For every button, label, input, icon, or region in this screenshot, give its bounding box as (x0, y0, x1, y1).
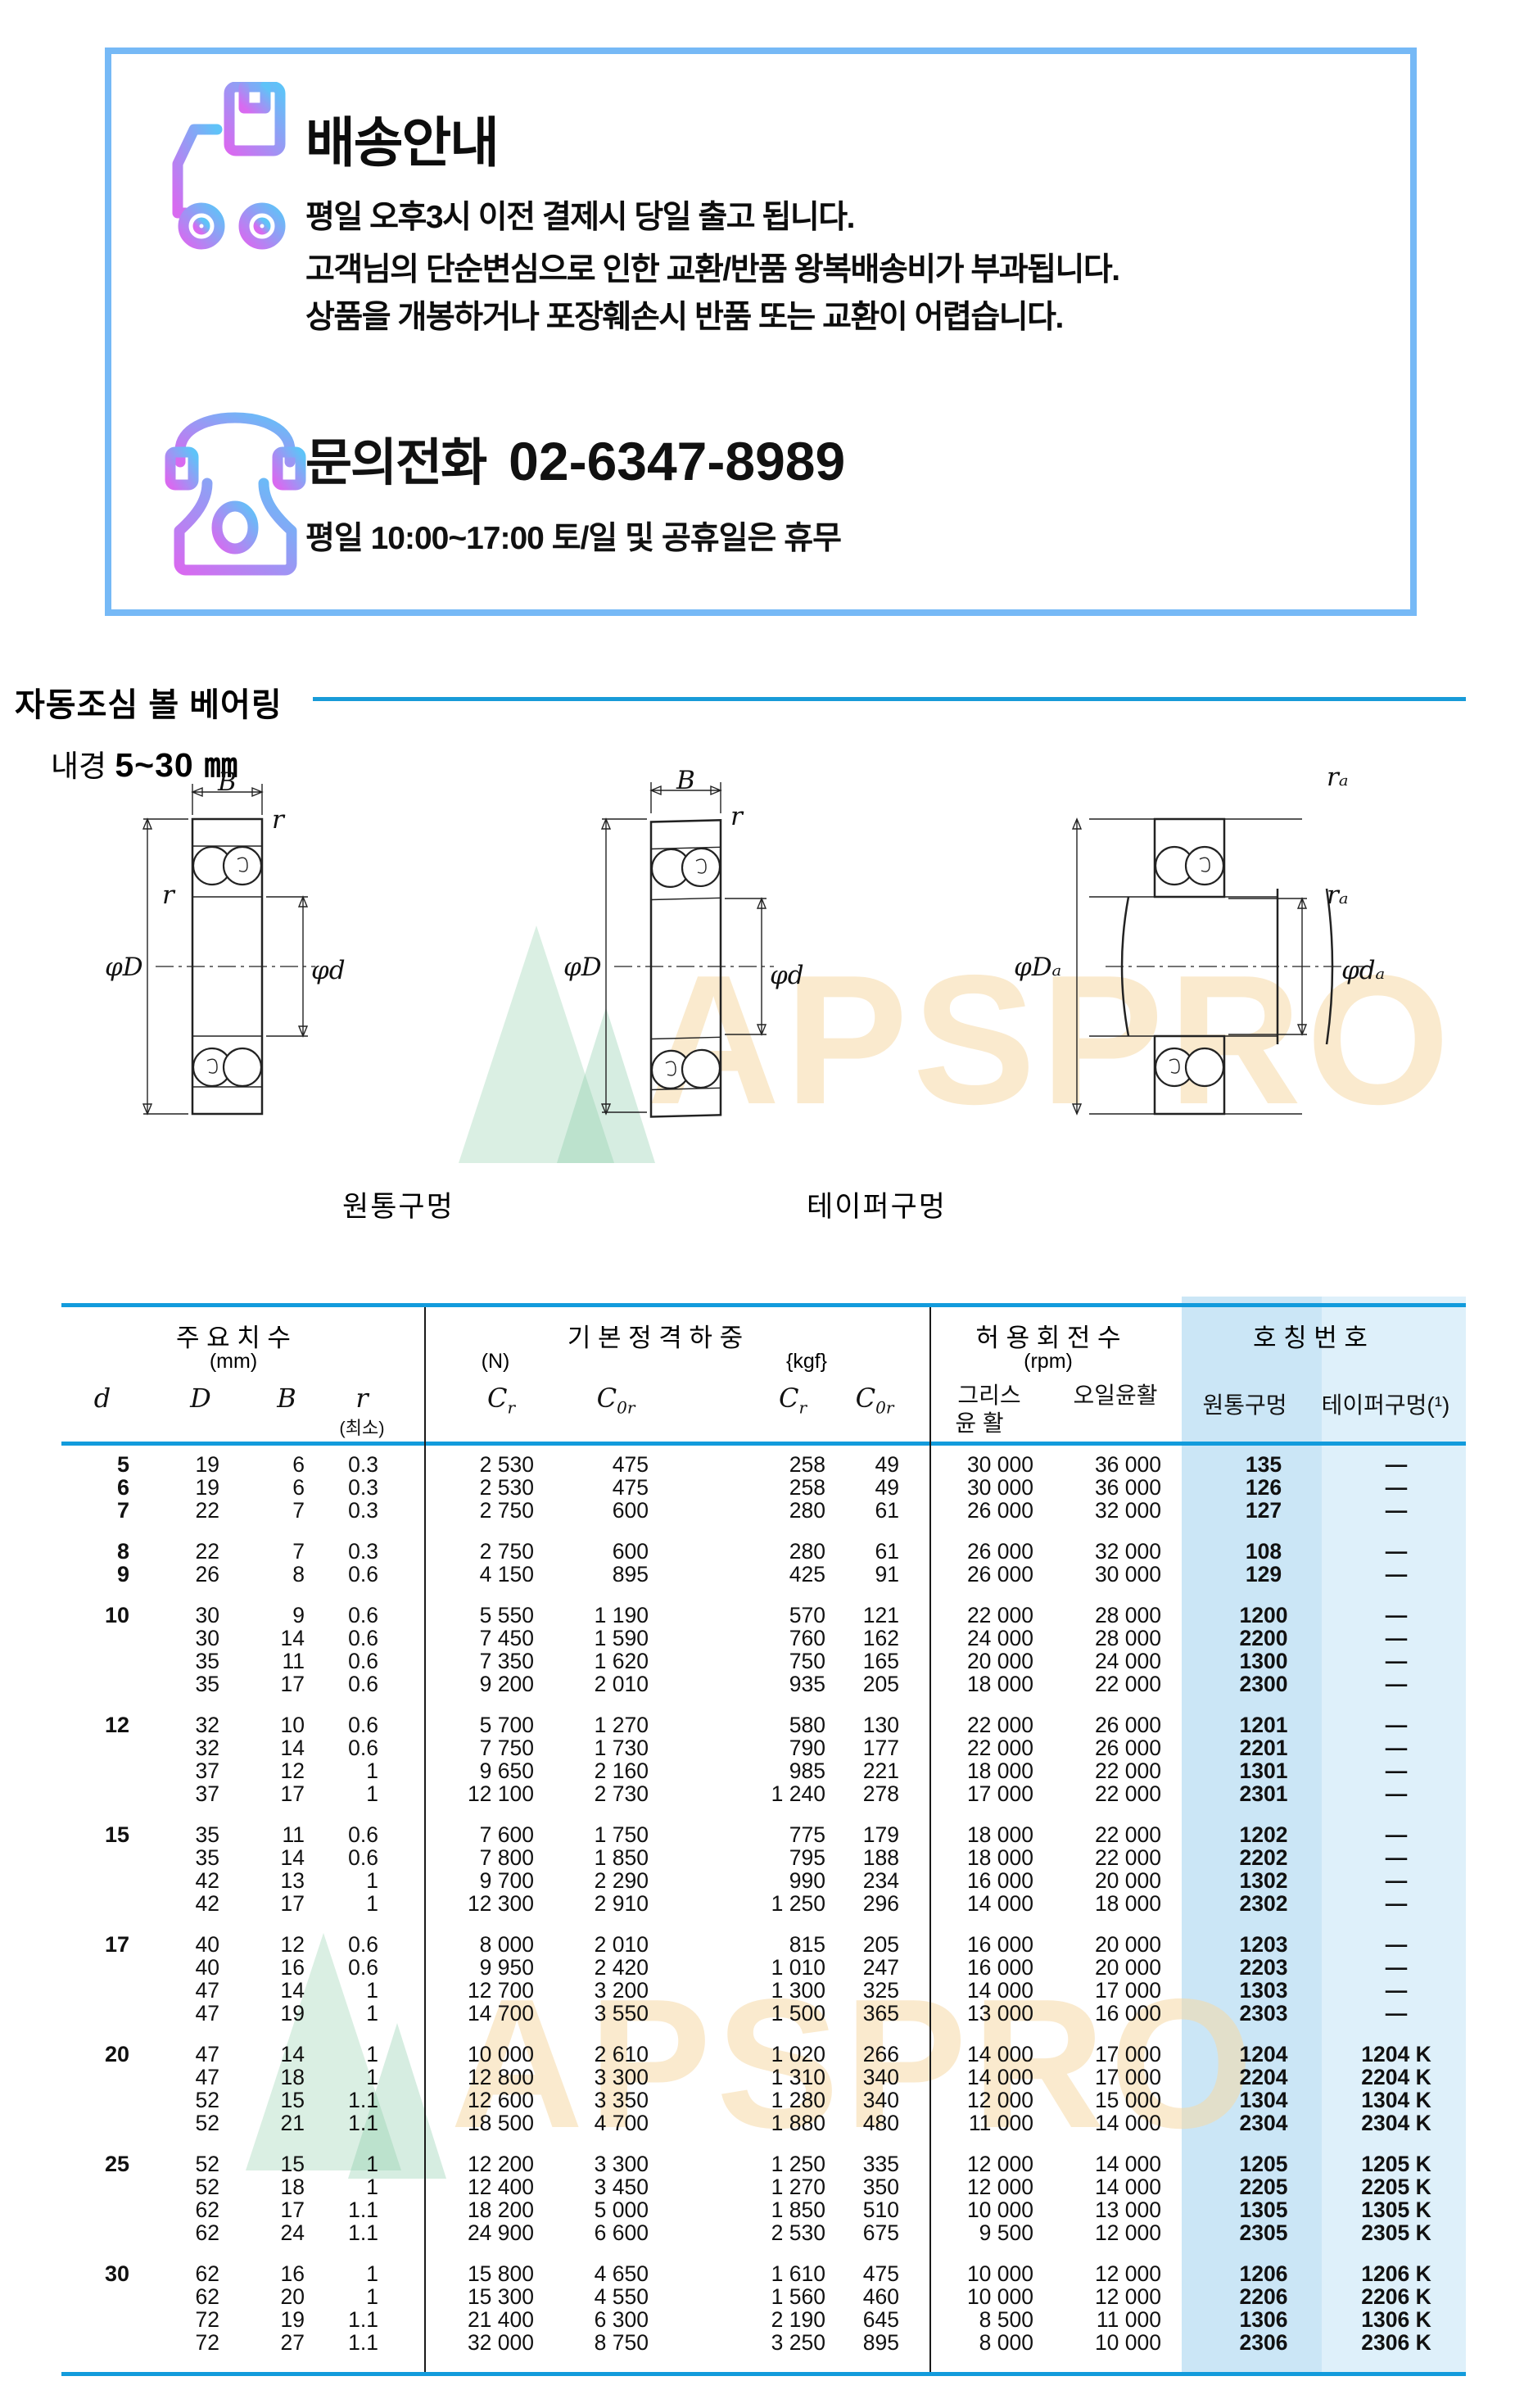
table-row: 92680.64 1508954259126 00030 000129— (0, 1563, 1515, 1586)
dim-B-label: B (676, 766, 695, 795)
cell-crn: 9 650 (426, 1759, 534, 1782)
cell-r: 1 (315, 2066, 378, 2089)
cell-gr: 12 000 (934, 2089, 1033, 2112)
cell-d (57, 1650, 129, 1672)
cell-cyl: 129 (1198, 1563, 1329, 1586)
cell-cyl: 1305 (1198, 2198, 1329, 2221)
cell-B: 7 (242, 1540, 305, 1563)
table-row: 35110.67 3501 62075016520 00024 0001300— (0, 1650, 1515, 1672)
cell-crk: 1 250 (712, 2152, 825, 2175)
cell-tap: — (1331, 1782, 1462, 1805)
cell-oil: 26 000 (1056, 1736, 1161, 1759)
cell-oil: 22 000 (1056, 1782, 1161, 1805)
cell-tap: — (1331, 1823, 1462, 1846)
header-limiting-speed: 허 용 회 전 수 (975, 1317, 1120, 1354)
cell-D: 52 (156, 2152, 219, 2175)
dim-r-label: r (272, 805, 284, 835)
cell-B: 20 (242, 2285, 305, 2308)
cell-tap: 2206 K (1331, 2285, 1462, 2308)
cell-cyl: 2303 (1198, 2002, 1329, 2025)
cell-c0rk: 49 (819, 1476, 899, 1499)
table-top-rule (61, 1303, 1466, 1307)
cell-r: 0.6 (315, 1933, 378, 1956)
cell-gr: 16 000 (934, 1869, 1033, 1892)
cell-oil: 10 000 (1056, 2331, 1161, 2354)
cell-r: 0.6 (315, 1846, 378, 1869)
bearing-diagram-mounted: rₐ rₐ φDₐ φdₐ (1032, 774, 1384, 1159)
cell-c0rk: 234 (819, 1869, 899, 1892)
cell-tap: 2205 K (1331, 2175, 1462, 2198)
group-gap (0, 2025, 1515, 2043)
cell-gr: 11 000 (934, 2112, 1033, 2134)
cell-crk: 280 (712, 1540, 825, 1563)
cell-c0rn: 4 650 (540, 2262, 649, 2285)
cell-gr: 14 000 (934, 1892, 1033, 1915)
phone-contact: 문의전화02-6347-8989 (305, 421, 845, 495)
cell-D: 37 (156, 1782, 219, 1805)
table-row: 72271.132 0008 7503 2508958 00010 000230… (0, 2331, 1515, 2354)
table-row: 52151.112 6003 3501 28034012 00015 00013… (0, 2089, 1515, 2112)
cell-r: 0.6 (315, 1736, 378, 1759)
cell-crn: 2 750 (426, 1540, 534, 1563)
cell-B: 21 (242, 2112, 305, 2134)
table-row: 4217112 3002 9101 25029614 00018 0002302… (0, 1892, 1515, 1915)
cell-oil: 28 000 (1056, 1604, 1161, 1627)
cell-c0rk: 61 (819, 1499, 899, 1522)
cell-cyl: 2200 (1198, 1627, 1329, 1650)
dim-phiD-label: φD (105, 953, 143, 982)
cell-crk: 1 500 (712, 2002, 825, 2025)
cell-B: 15 (242, 2152, 305, 2175)
cell-c0rk: 130 (819, 1713, 899, 1736)
cell-c0rk: 165 (819, 1650, 899, 1672)
bearing-diagram-cylindrical: B r r φD φd (115, 774, 385, 1159)
cell-c0rn: 5 000 (540, 2198, 649, 2221)
cell-crn: 12 400 (426, 2175, 534, 2198)
table-row: 72270.32 7506002806126 00032 000127— (0, 1499, 1515, 1522)
section-rule (313, 697, 1466, 701)
shipping-info-banner: 배송안내 평일 오후3시 이전 결제시 당일 출고 됩니다. 고객님의 단순변심… (105, 48, 1417, 616)
cell-r: 1 (315, 1979, 378, 2002)
cell-d (57, 1782, 129, 1805)
cell-c0rk: 266 (819, 2043, 899, 2066)
cell-tap: 1205 K (1331, 2152, 1462, 2175)
col-grease-line2: 윤 활 (955, 1405, 1003, 1438)
cell-c0rn: 1 750 (540, 1823, 649, 1846)
banner-line-1: 평일 오후3시 이전 결제시 당일 출고 됩니다. (305, 192, 854, 238)
cell-crk: 258 (712, 1476, 825, 1499)
cell-D: 52 (156, 2175, 219, 2198)
cell-D: 22 (156, 1540, 219, 1563)
cell-crn: 9 700 (426, 1869, 534, 1892)
table-row: 4718112 8003 3001 31034014 00017 0002204… (0, 2066, 1515, 2089)
cell-d (57, 2331, 129, 2354)
cell-gr: 14 000 (934, 1979, 1033, 2002)
group-gap (0, 2244, 1515, 2262)
cell-cyl: 1200 (1198, 1604, 1329, 1627)
cell-r: 1 (315, 1869, 378, 1892)
cell-gr: 26 000 (934, 1540, 1033, 1563)
bore-range-label: 내경 (51, 749, 106, 783)
bearing-diagram-tapered: B r φD φd (573, 774, 843, 1159)
cell-crn: 12 200 (426, 2152, 534, 2175)
cell-crn: 9 200 (426, 1672, 534, 1695)
cell-crn: 7 600 (426, 1823, 534, 1846)
cell-tap: — (1331, 1604, 1462, 1627)
cell-cyl: 2306 (1198, 2331, 1329, 2354)
group-gap (0, 1915, 1515, 1933)
phone-icon (164, 405, 307, 585)
cell-crn: 15 800 (426, 2262, 534, 2285)
table-bottom-rule (61, 2372, 1466, 2376)
cell-tap: — (1331, 1650, 1462, 1672)
cell-oil: 22 000 (1056, 1759, 1161, 1782)
cell-D: 52 (156, 2112, 219, 2134)
cell-tap: 1304 K (1331, 2089, 1462, 2112)
cell-c0rk: 645 (819, 2308, 899, 2331)
cell-gr: 30 000 (934, 1476, 1033, 1499)
cell-oil: 24 000 (1056, 1650, 1161, 1672)
cell-cyl: 1302 (1198, 1869, 1329, 1892)
cell-c0rn: 3 350 (540, 2089, 649, 2112)
cell-crk: 1 020 (712, 2043, 825, 2066)
cell-r: 1.1 (315, 2221, 378, 2244)
table-row: 61960.32 5304752584930 00036 000126— (0, 1476, 1515, 1499)
cell-gr: 10 000 (934, 2198, 1033, 2221)
dim-r-label: r (730, 802, 743, 831)
cell-crn: 4 150 (426, 1563, 534, 1586)
cell-tap: — (1331, 1627, 1462, 1650)
cell-gr: 18 000 (934, 1823, 1033, 1846)
cell-c0rn: 2 730 (540, 1782, 649, 1805)
cell-crk: 1 240 (712, 1782, 825, 1805)
banner-line-3: 상품을 개봉하거나 포장훼손시 반품 또는 교환이 어렵습니다. (305, 292, 1063, 337)
section-title: 자동조심 볼 베어링 (15, 678, 283, 726)
cell-crk: 1 270 (712, 2175, 825, 2198)
cell-B: 16 (242, 2262, 305, 2285)
cell-gr: 14 000 (934, 2066, 1033, 2089)
cell-c0rn: 2 010 (540, 1672, 649, 1695)
dim-ra-label: rₐ (1327, 763, 1348, 792)
cell-tap: 1305 K (1331, 2198, 1462, 2221)
cell-crn: 2 530 (426, 1476, 534, 1499)
cell-crk: 1 610 (712, 2262, 825, 2285)
table-row: 40160.69 9502 4201 01024716 00020 000220… (0, 1956, 1515, 1979)
cell-D: 62 (156, 2262, 219, 2285)
cell-c0rk: 91 (819, 1563, 899, 1586)
cell-c0rk: 510 (819, 2198, 899, 2221)
cell-D: 35 (156, 1650, 219, 1672)
cell-tap: — (1331, 1759, 1462, 1782)
cell-crk: 750 (712, 1650, 825, 1672)
table-row: 35140.67 8001 85079518818 00022 0002202— (0, 1846, 1515, 1869)
col-d: d (94, 1383, 111, 1414)
cell-oil: 16 000 (1056, 2002, 1161, 2025)
table-row: 6220115 3004 5501 56046010 00012 0002206… (0, 2285, 1515, 2308)
cell-crn: 32 000 (426, 2331, 534, 2354)
cell-gr: 13 000 (934, 2002, 1033, 2025)
cell-d (57, 1869, 129, 1892)
cell-c0rn: 1 270 (540, 1713, 649, 1736)
cell-crn: 12 700 (426, 1979, 534, 2002)
cell-d (57, 2198, 129, 2221)
cell-gr: 16 000 (934, 1956, 1033, 1979)
cell-B: 17 (242, 2198, 305, 2221)
cell-D: 52 (156, 2089, 219, 2112)
cell-D: 47 (156, 2066, 219, 2089)
cell-gr: 12 000 (934, 2175, 1033, 2198)
cell-oil: 22 000 (1056, 1672, 1161, 1695)
cell-oil: 14 000 (1056, 2175, 1161, 2198)
cell-oil: 20 000 (1056, 1956, 1161, 1979)
cell-c0rn: 3 200 (540, 1979, 649, 2002)
cell-oil: 17 000 (1056, 2066, 1161, 2089)
cell-r: 0.6 (315, 1956, 378, 1979)
cell-c0rk: 61 (819, 1540, 899, 1563)
cell-c0rn: 475 (540, 1453, 649, 1476)
cell-gr: 8 500 (934, 2308, 1033, 2331)
col-tapered-bore: 테이퍼구멍(¹) (1322, 1387, 1450, 1420)
group-gap (0, 1695, 1515, 1713)
cell-crk: 1 880 (712, 2112, 825, 2134)
cell-B: 18 (242, 2175, 305, 2198)
cell-c0rn: 1 730 (540, 1736, 649, 1759)
cell-tap: — (1331, 1476, 1462, 1499)
table-row: 421319 7002 29099023416 00020 0001302— (0, 1869, 1515, 1892)
group-gap (0, 1522, 1515, 1540)
cell-oil: 17 000 (1056, 1979, 1161, 2002)
table-rows: 51960.32 5304752584930 00036 000135—6196… (0, 1453, 1515, 2354)
cell-c0rk: 350 (819, 2175, 899, 2198)
cell-r: 1.1 (315, 2198, 378, 2221)
cell-c0rk: 205 (819, 1672, 899, 1695)
cell-c0rk: 179 (819, 1823, 899, 1846)
cell-tap: — (1331, 1846, 1462, 1869)
cell-gr: 18 000 (934, 1759, 1033, 1782)
cell-d: 12 (57, 1713, 129, 1736)
cell-crk: 425 (712, 1563, 825, 1586)
cell-crn: 18 500 (426, 2112, 534, 2134)
cell-tap: — (1331, 1453, 1462, 1476)
cell-gr: 20 000 (934, 1650, 1033, 1672)
table-row: 1535110.67 6001 75077517918 00022 000120… (0, 1823, 1515, 1846)
phone-label: 문의전화 (305, 435, 486, 491)
cell-D: 62 (156, 2285, 219, 2308)
cell-tap: — (1331, 2002, 1462, 2025)
cell-tap: — (1331, 1563, 1462, 1586)
cell-crn: 7 350 (426, 1650, 534, 1672)
phone-number: 02-6347-8989 (509, 431, 845, 491)
cell-crk: 2 530 (712, 2221, 825, 2244)
cell-cyl: 2201 (1198, 1736, 1329, 1759)
cell-tap: — (1331, 1956, 1462, 1979)
dim-B-label: B (218, 767, 237, 797)
cell-c0rk: 278 (819, 1782, 899, 1805)
cell-oil: 22 000 (1056, 1823, 1161, 1846)
cell-d (57, 1672, 129, 1695)
cell-D: 26 (156, 1563, 219, 1586)
cell-d (57, 1736, 129, 1759)
cell-d: 7 (57, 1499, 129, 1522)
header-main-dimensions: 주 요 치 수 (176, 1317, 291, 1354)
cell-B: 17 (242, 1892, 305, 1915)
cell-cyl: 108 (1198, 1540, 1329, 1563)
cell-r: 0.6 (315, 1650, 378, 1672)
cell-crk: 775 (712, 1823, 825, 1846)
dim-phiDa-label: φDₐ (1014, 953, 1061, 982)
dim-ra-label: rₐ (1327, 880, 1348, 910)
cell-cyl: 127 (1198, 1499, 1329, 1522)
cell-crn: 15 300 (426, 2285, 534, 2308)
cell-c0rk: 177 (819, 1736, 899, 1759)
cell-B: 10 (242, 1713, 305, 1736)
table-row: 306216115 8004 6501 61047510 00012 00012… (0, 2262, 1515, 2285)
cell-c0rn: 4 700 (540, 2112, 649, 2134)
cell-d (57, 1979, 129, 2002)
cell-B: 14 (242, 1736, 305, 1759)
cell-crk: 280 (712, 1499, 825, 1522)
cell-c0rn: 2 610 (540, 2043, 649, 2066)
cell-crk: 1 010 (712, 1956, 825, 1979)
cell-crn: 5 550 (426, 1604, 534, 1627)
cell-r: 1 (315, 2043, 378, 2066)
cell-c0rn: 3 450 (540, 2175, 649, 2198)
cell-d (57, 2066, 129, 2089)
cell-gr: 22 000 (934, 1713, 1033, 1736)
col-Cr-kgf: Cr (779, 1383, 807, 1417)
cell-c0rk: 247 (819, 1956, 899, 1979)
cell-r: 0.3 (315, 1540, 378, 1563)
cell-c0rk: 480 (819, 2112, 899, 2134)
col-B: B (277, 1383, 296, 1414)
cell-B: 17 (242, 1782, 305, 1805)
cell-cyl: 2205 (1198, 2175, 1329, 2198)
header-main-dimensions-unit: (mm) (210, 1350, 257, 1374)
cell-r: 1 (315, 2285, 378, 2308)
cell-B: 14 (242, 2043, 305, 2066)
cell-r: 0.6 (315, 1604, 378, 1627)
cell-tap: — (1331, 1672, 1462, 1695)
cell-cyl: 1201 (1198, 1713, 1329, 1736)
cell-oil: 14 000 (1056, 2152, 1161, 2175)
cell-oil: 12 000 (1056, 2221, 1161, 2244)
cell-d (57, 1846, 129, 1869)
table-row: 62171.118 2005 0001 85051010 00013 00013… (0, 2198, 1515, 2221)
cell-B: 19 (242, 2002, 305, 2025)
cell-oil: 14 000 (1056, 2112, 1161, 2134)
cell-c0rn: 8 750 (540, 2331, 649, 2354)
cell-tap: — (1331, 1736, 1462, 1759)
dim-phiD-label: φD (563, 953, 602, 982)
cell-r: 1.1 (315, 2112, 378, 2134)
cell-gr: 14 000 (934, 2043, 1033, 2066)
table-row: 62241.124 9006 6002 5306759 50012 000230… (0, 2221, 1515, 2244)
cell-D: 42 (156, 1869, 219, 1892)
cell-D: 19 (156, 1453, 219, 1476)
cell-d (57, 1627, 129, 1650)
cell-crk: 935 (712, 1672, 825, 1695)
cell-D: 40 (156, 1956, 219, 1979)
cell-c0rk: 340 (819, 2089, 899, 2112)
cell-crk: 795 (712, 1846, 825, 1869)
col-D: D (190, 1383, 211, 1414)
cell-B: 13 (242, 1869, 305, 1892)
cell-tap: — (1331, 1933, 1462, 1956)
cell-c0rk: 296 (819, 1892, 899, 1915)
cell-d (57, 2112, 129, 2134)
cell-r: 0.3 (315, 1476, 378, 1499)
cell-cyl: 2305 (1198, 2221, 1329, 2244)
cell-cyl: 1204 (1198, 2043, 1329, 2066)
cell-c0rk: 340 (819, 2066, 899, 2089)
cell-c0rn: 2 290 (540, 1869, 649, 1892)
cell-c0rn: 600 (540, 1499, 649, 1522)
cell-oil: 30 000 (1056, 1563, 1161, 1586)
cell-d (57, 2089, 129, 2112)
cell-r: 1 (315, 2175, 378, 2198)
cell-tap: 1206 K (1331, 2262, 1462, 2285)
col-oil: 오일윤활 (1073, 1378, 1157, 1410)
table-row: 204714110 0002 6101 02026614 00017 00012… (0, 2043, 1515, 2066)
cell-c0rk: 675 (819, 2221, 899, 2244)
cell-c0rn: 475 (540, 1476, 649, 1499)
cell-oil: 26 000 (1056, 1713, 1161, 1736)
cell-c0rk: 335 (819, 2152, 899, 2175)
cell-crk: 1 560 (712, 2285, 825, 2308)
cell-tap: 1204 K (1331, 2043, 1462, 2066)
header-unit-kgf: {kgf} (786, 1350, 827, 1374)
cell-d (57, 1892, 129, 1915)
cell-crn: 14 700 (426, 2002, 534, 2025)
cell-B: 9 (242, 1604, 305, 1627)
cell-r: 0.6 (315, 1563, 378, 1586)
cell-c0rk: 49 (819, 1453, 899, 1476)
cell-d: 6 (57, 1476, 129, 1499)
cell-c0rk: 205 (819, 1933, 899, 1956)
cell-oil: 36 000 (1056, 1453, 1161, 1476)
cell-crk: 790 (712, 1736, 825, 1759)
cell-d: 30 (57, 2262, 129, 2285)
phone-hours: 평일 10:00~17:00 토/일 및 공휴일은 휴무 (305, 513, 841, 559)
cell-crk: 1 280 (712, 2089, 825, 2112)
cell-cyl: 2202 (1198, 1846, 1329, 1869)
cell-gr: 26 000 (934, 1499, 1033, 1522)
cell-d: 17 (57, 1933, 129, 1956)
cell-d (57, 2002, 129, 2025)
table-row: 30140.67 4501 59076016224 00028 0002200— (0, 1627, 1515, 1650)
cell-c0rn: 1 850 (540, 1846, 649, 1869)
cell-r: 0.6 (315, 1627, 378, 1650)
cell-c0rn: 3 550 (540, 2002, 649, 2025)
cell-tap: 2305 K (1331, 2221, 1462, 2244)
cell-oil: 20 000 (1056, 1869, 1161, 1892)
delivery-truck-icon (165, 82, 301, 258)
cell-gr: 9 500 (934, 2221, 1033, 2244)
cell-c0rn: 1 190 (540, 1604, 649, 1627)
cell-d: 5 (57, 1453, 129, 1476)
cell-crk: 258 (712, 1453, 825, 1476)
table-row: 371219 6502 16098522118 00022 0001301— (0, 1759, 1515, 1782)
cell-B: 14 (242, 1846, 305, 1869)
cell-gr: 26 000 (934, 1563, 1033, 1586)
cell-r: 1 (315, 2262, 378, 2285)
cell-B: 14 (242, 1979, 305, 2002)
cell-c0rk: 325 (819, 1979, 899, 2002)
cell-cyl: 2300 (1198, 1672, 1329, 1695)
cell-crn: 8 000 (426, 1933, 534, 1956)
dim-r-label: r (162, 880, 174, 910)
table-row: 1740120.68 0002 01081520516 00020 000120… (0, 1933, 1515, 1956)
